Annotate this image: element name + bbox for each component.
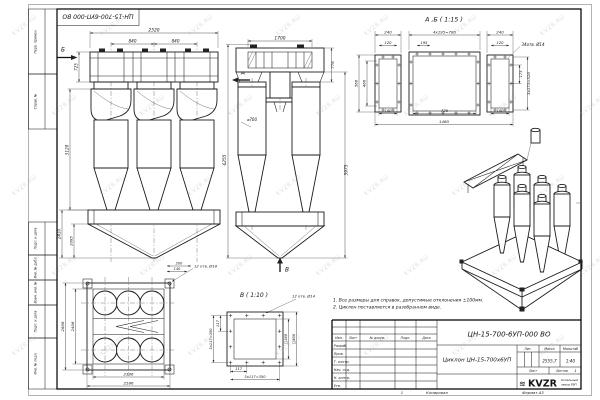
front-view: 2520 840 840 725 3120 2410 2085 Б А [56, 28, 250, 262]
dim-side-flange-offset: 776 [330, 61, 335, 69]
stamp-doc-number: ЦН-15-700-6УП-000 ВО [62, 13, 133, 20]
dim-ab-720: 720 [441, 108, 449, 113]
cyclone-cone [180, 168, 214, 210]
cyclone-cylinder [137, 120, 171, 168]
dim-ab-180-left: 180 [384, 109, 392, 113]
margin-label: Инв. № дубл. [34, 257, 38, 279]
view-arrow-v: В [277, 258, 289, 274]
inlet-manifold [90, 52, 218, 82]
rotated-doc-stamp: ЦН-15-700-6УП-000 ВО [57, 9, 139, 26]
footer-num: 1 [401, 390, 403, 395]
row-razrab: Разраб. [334, 344, 347, 348]
title-block: Изм. Лист № докум. Подп. Дата Разраб. Пр… [332, 320, 581, 390]
dim-ab-120-left: 120 [384, 41, 392, 45]
cyclone-cylinder [292, 87, 320, 155]
dim-v-350-bottom: 3x117=350 [244, 375, 266, 379]
doc-number: ЦН-15-700-6УП-000 ВО [468, 331, 551, 339]
dim-ab-pitch: 4x195=780 [433, 30, 456, 35]
col-data: Дата [421, 336, 430, 340]
cyclone-cone [137, 168, 171, 210]
detail-v-title: В ( 1:10 ) [240, 292, 268, 299]
scale-label: Масштаб [563, 347, 578, 351]
scale-value: 1:40 [566, 359, 576, 364]
dim-plan-2586: 2586 [124, 381, 134, 386]
row-nkontr: Н. контр. [334, 376, 350, 380]
col-izm: Изм. [335, 336, 343, 340]
dim-ab-195: 195 [420, 41, 428, 45]
margin-label: Перв. примен. [34, 30, 38, 54]
hopper-flange [88, 210, 220, 224]
cyclone-cone [238, 155, 266, 212]
mass-label: Масса [544, 347, 554, 351]
plan-view: 2606 2406 2386 2586 200 140 12 отв. Ø18 [60, 262, 218, 389]
dim-ab-560: 560 [353, 79, 358, 87]
sheets-label: Листов [555, 369, 568, 373]
dim-ab-240-left: 240 [384, 30, 392, 35]
footer-copied: Копировал [426, 390, 448, 395]
col-podp: Подп. [401, 336, 411, 340]
side-view: ⌀700 1700 776 6255 5975 В [222, 36, 349, 274]
note-ab-holes: 34отв. Ø14 [522, 42, 545, 47]
dim-ab-180-right: 180 [496, 109, 504, 113]
row-tkontr: Т. контр. [334, 360, 350, 364]
mass-value: 2555,7 [542, 359, 557, 364]
cyclone-cone [94, 168, 128, 210]
col-doc: № докум. [369, 336, 386, 340]
hopper-flange [236, 212, 324, 226]
dim-side-diameter: ⌀700 [247, 117, 257, 122]
dim-ab-460: 460 [361, 79, 366, 87]
note-detail-holes: 12 отв. Ø14 [292, 294, 316, 299]
note-line-2: 2. Циклон поставляется в разобранном вид… [333, 305, 441, 311]
dim-v-sq360: □360 [284, 333, 288, 344]
dim-v-350-left: 3x117=350 [209, 328, 213, 350]
margin-label: Подп. и дата [34, 311, 38, 333]
dim-side-total-height: 6255 [222, 154, 228, 165]
flange-middle [409, 52, 480, 115]
dim-v-sq400: □400 [292, 333, 296, 344]
footer-strip: 1 Копировал Формат А3 [401, 390, 545, 395]
isometric-view [460, 128, 583, 311]
row-utv: Утв. [334, 384, 341, 388]
dim-front-cone-height: 2085 [68, 236, 73, 246]
note-plan-holes: 12 отв. Ø18 [194, 264, 218, 269]
sheets-value: 1 [574, 369, 576, 373]
notes: 1. Все размеры для справок, допустимые о… [333, 298, 483, 311]
margin-label: Инв. № подл. [34, 353, 38, 375]
dim-plan-2406: 2406 [70, 321, 75, 331]
row-nachotd: Нач. отд. [334, 368, 350, 372]
dim-ab-173: 173 [519, 70, 523, 78]
cyclone-cone [292, 155, 320, 212]
hopper-pyramid [236, 226, 324, 258]
cyclone-cylinder [94, 120, 128, 168]
detail-v-view: В ( 1:10 ) 12 отв. Ø14 117 3x117=350 117… [209, 292, 316, 382]
view-label-v: В [285, 268, 289, 274]
company-name-line1: Котельный [561, 378, 578, 382]
part-name: Циклон ЦН-15-700х6УП [443, 358, 512, 364]
logo-text: KVZR [528, 379, 558, 390]
dim-ab-1460: 1460 [439, 119, 449, 124]
dim-ab-120-right: 120 [496, 41, 504, 45]
section-ab-title: А ,Б ( 1:15 ) [424, 17, 463, 24]
dim-front-total-width: 2520 [148, 28, 159, 34]
col-list: Лист [348, 336, 357, 340]
view-label-b: Б [61, 48, 65, 54]
logo-wave-icon: ≋ [519, 380, 526, 389]
dim-side-body-height: 5975 [343, 164, 349, 175]
footer-format: Формат А3 [522, 390, 544, 395]
dim-ab-240-right: 240 [496, 30, 504, 35]
dim-v-117-bottom: 117 [235, 367, 243, 371]
row-prov: Пров. [334, 352, 344, 356]
margin-label: Справ. № [34, 93, 38, 109]
dim-side-top-width: 1700 [274, 36, 285, 42]
drawing-sheet-svg: Перв. примен. Справ. № Подп. и дата Инв.… [0, 0, 600, 400]
dim-front-body-height: 3120 [64, 144, 69, 155]
dim-front-inlet-height: 725 [73, 63, 78, 71]
margin-label: Взам. инв. № [34, 281, 38, 303]
dim-front-hopper-height: 2410 [56, 228, 61, 239]
margin-column: Перв. примен. Справ. № Подп. и дата Инв.… [29, 9, 58, 389]
note-line-1: 1. Все размеры для справок, допустимые о… [333, 298, 483, 304]
lit-label: Лит. [523, 347, 531, 351]
dim-ab-520: 3x173=520 [526, 72, 531, 95]
dim-plan-2606: 2606 [60, 321, 65, 331]
margin-label: Подп. и дата [34, 228, 38, 250]
dim-v-117-left: 117 [216, 319, 220, 327]
dim-plan-2386: 2386 [124, 372, 134, 377]
section-ab-view: А ,Б ( 1:15 ) 240 4x195=780 240 120 195 … [353, 17, 545, 127]
sheet-label: Лист [528, 369, 537, 373]
blueprint-sheet: Перв. примен. Справ. № Подп. и дата Инв.… [0, 0, 600, 400]
collector-box [236, 48, 324, 72]
dim-front-bay1: 840 [129, 39, 137, 44]
company-logo: ≋ KVZR Котельный завод РЭП [519, 378, 578, 390]
dim-front-bay2: 840 [172, 39, 180, 44]
outlet-duct [270, 72, 290, 98]
dim-plan-140: 140 [174, 267, 181, 271]
dim-plan-200: 200 [176, 262, 183, 266]
view-arrow-b: Б [58, 48, 78, 61]
square-flange-outer [227, 312, 283, 366]
company-name-line2: завод РЭП [561, 383, 577, 387]
cyclone-cylinder [180, 120, 214, 168]
